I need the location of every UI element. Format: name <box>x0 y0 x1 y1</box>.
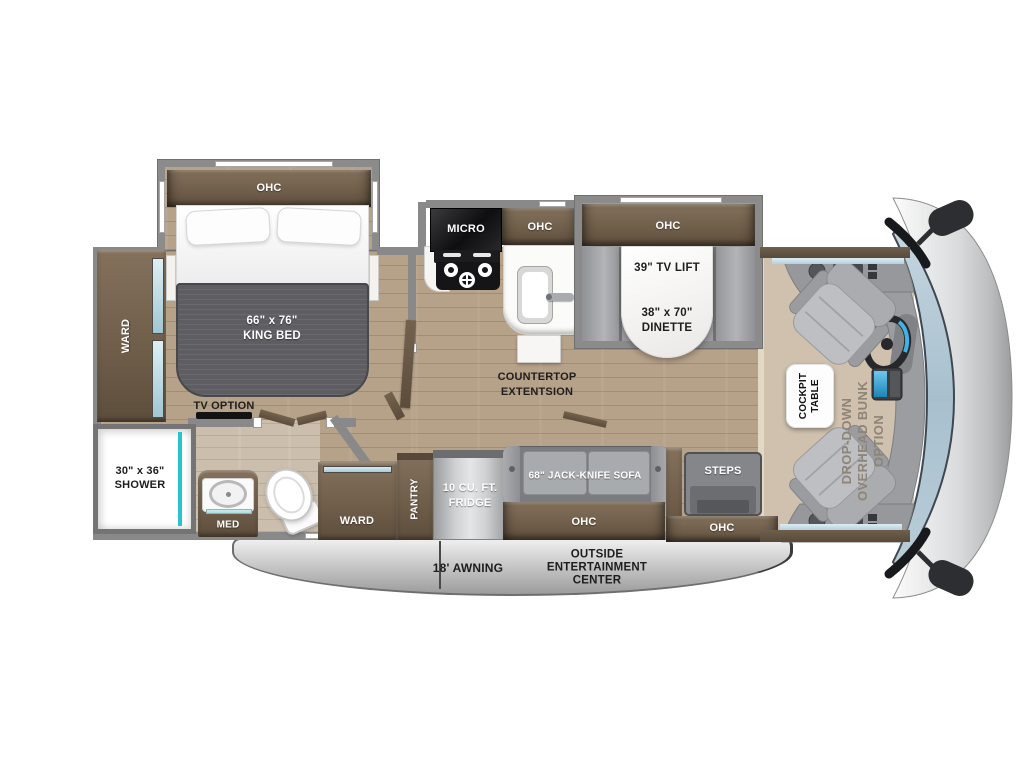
countertop-extension-label: COUNTERTOP EXTENTSION <box>498 370 577 400</box>
dinette-size: 38" x 70" <box>641 306 692 321</box>
sofa-pin-right <box>655 466 661 472</box>
med-label: MED <box>217 520 240 531</box>
steps-label: STEPS <box>704 465 741 477</box>
tv-option-bar <box>196 412 252 419</box>
awning-bar <box>232 538 793 596</box>
lav-shelf <box>206 509 252 514</box>
cab-defroster-strip <box>772 258 904 264</box>
ward-left-label: WARD <box>120 319 132 353</box>
fridge-size: 10 CU. FT. <box>443 481 498 496</box>
galley-faucet-base <box>546 294 552 300</box>
shower-name: SHOWER <box>115 478 166 492</box>
hood-handle-right <box>473 253 491 257</box>
cab-wall-bottom <box>760 530 910 542</box>
ward-bottom-cabinet <box>318 462 397 540</box>
bedroom-ohc-label: OHC <box>256 182 281 194</box>
dinette-ohc-label: OHC <box>655 220 680 232</box>
burner-1 <box>444 263 458 277</box>
outside-line1: OUTSIDE <box>547 549 647 562</box>
outside-line2: ENTERTAINMENT <box>547 562 647 575</box>
awning-label: 18' AWNING <box>433 561 503 575</box>
dash-switch-top-1 <box>868 263 877 270</box>
pantry-label: PANTRY <box>410 478 421 519</box>
bed-pillow-right <box>276 207 362 246</box>
dash-switch-bottom-1 <box>868 514 877 521</box>
burner-2 <box>478 263 492 277</box>
lav-drain <box>226 492 231 497</box>
nightstand-left <box>166 255 176 301</box>
hood-handle-left <box>443 253 461 257</box>
pantry-top-edge <box>397 453 433 460</box>
cockpit-table-label: COCKPIT TABLE <box>798 373 822 419</box>
cockpit-table-line1: COCKPIT <box>798 373 810 419</box>
fridge-label: 10 CU. FT. FRIDGE <box>443 481 498 511</box>
drop-down-bunk-label: DROP-DOWN OVERHEAD BUNK OPTION <box>839 381 887 501</box>
slideout-window-left <box>159 181 165 233</box>
slideout-window-right <box>372 181 378 233</box>
microwave-label: MICRO <box>447 223 485 235</box>
entry-ohc-label: OHC <box>709 522 734 534</box>
slideout-window-top <box>215 161 333 167</box>
cab-wall-top <box>760 247 910 258</box>
shower-label: 30" x 36" SHOWER <box>115 464 166 492</box>
sofa-label: 68" JACK-KNIFE SOFA <box>528 471 641 482</box>
shower-size: 30" x 36" <box>115 464 166 478</box>
tv-lift-label: 39" TV LIFT <box>634 262 700 274</box>
dinette-bench-left <box>582 247 622 341</box>
cockpit-table-line2: TABLE <box>810 373 822 419</box>
dinette-label: 38" x 70" DINETTE <box>641 306 692 336</box>
fridge-name: FRIDGE <box>443 496 498 511</box>
dinette-name: DINETTE <box>641 321 692 336</box>
dash-switch-top-2 <box>868 272 877 279</box>
ward-bottom-label: WARD <box>340 515 374 527</box>
galley-ohc-label: OHC <box>527 221 552 233</box>
sofa-ohc-label: OHC <box>571 516 596 528</box>
tv-option-label: TV OPTION <box>193 400 254 412</box>
nightstand-right <box>369 255 379 301</box>
countertop-line1: COUNTERTOP <box>498 370 577 385</box>
bunk-line2: OVERHEAD BUNK <box>855 381 871 501</box>
countertop-extension <box>517 335 561 363</box>
ward-left-mirror-top <box>152 258 164 334</box>
outside-line3: CENTER <box>547 575 647 588</box>
wall-bath <box>188 418 254 427</box>
ward-left-mirror-bottom <box>152 340 164 418</box>
dinette-window-top <box>620 197 722 203</box>
king-bed-size: 66" x 76" <box>243 314 301 329</box>
wall-cap-bath1 <box>254 418 261 427</box>
bunk-line3: OPTION <box>871 381 887 501</box>
galley-sink-basin <box>522 272 548 318</box>
countertop-line2: EXTENTSION <box>498 385 577 400</box>
bed-pillow-left <box>185 207 271 246</box>
sofa-pin-left <box>509 466 515 472</box>
shower-glass-accent <box>178 432 182 526</box>
outside-entertainment-label: OUTSIDE ENTERTAINMENT CENTER <box>547 549 647 588</box>
king-bed-label: 66" x 76" KING BED <box>243 314 301 344</box>
fridge-top-edge <box>433 450 508 458</box>
rv-floorplan: 18' AWNING OUTSIDE ENTERTAINMENT CENTER … <box>0 0 1024 768</box>
entry-door-strip <box>780 524 902 530</box>
ward-bottom-glass <box>323 466 392 473</box>
burner-3-cross-h <box>461 279 473 281</box>
sofa-arm-left <box>503 446 520 504</box>
bunk-line1: DROP-DOWN <box>839 381 855 501</box>
window-galley <box>539 201 566 207</box>
king-bed-name: KING BED <box>243 329 301 344</box>
